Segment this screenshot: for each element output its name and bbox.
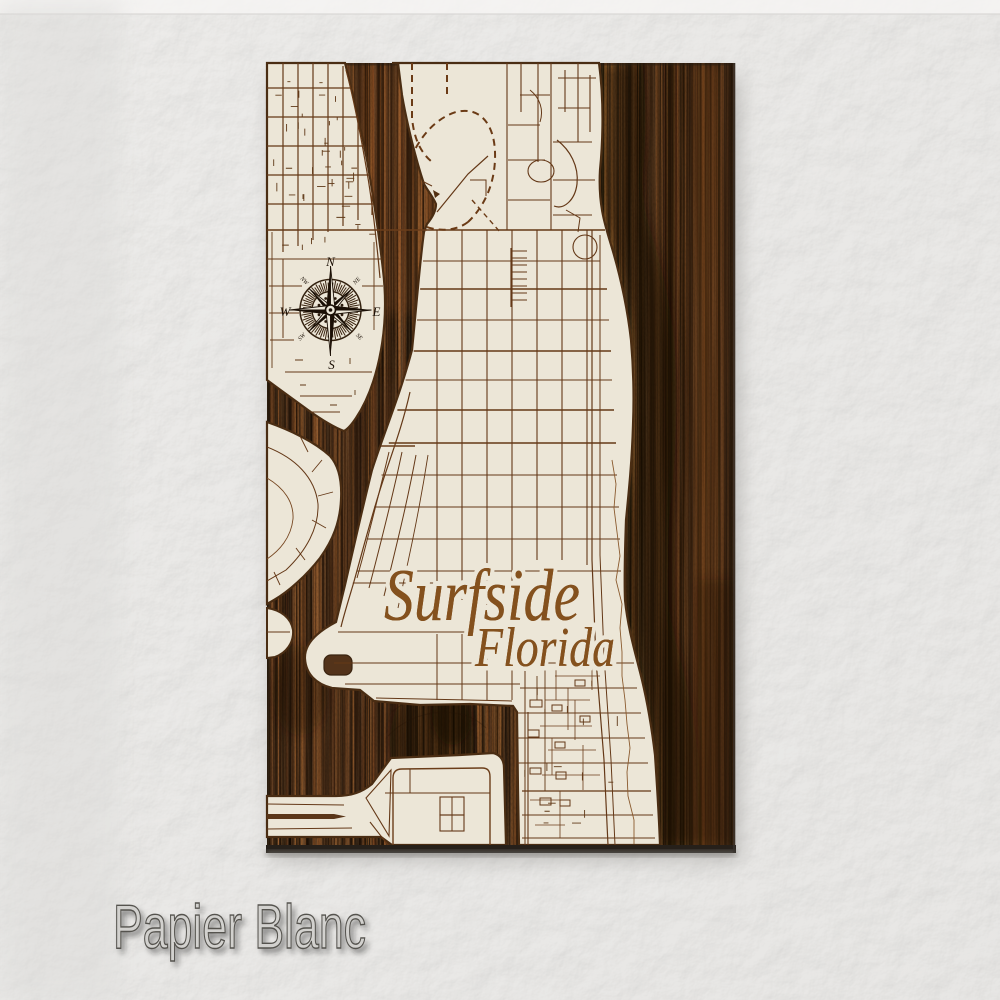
svg-text:N: N	[325, 254, 336, 269]
svg-text:Papier Blanc: Papier Blanc	[113, 893, 366, 962]
svg-text:E: E	[372, 304, 381, 319]
svg-text:S: S	[328, 357, 335, 372]
svg-text:W: W	[280, 304, 292, 319]
svg-text:Florida: Florida	[474, 617, 615, 679]
